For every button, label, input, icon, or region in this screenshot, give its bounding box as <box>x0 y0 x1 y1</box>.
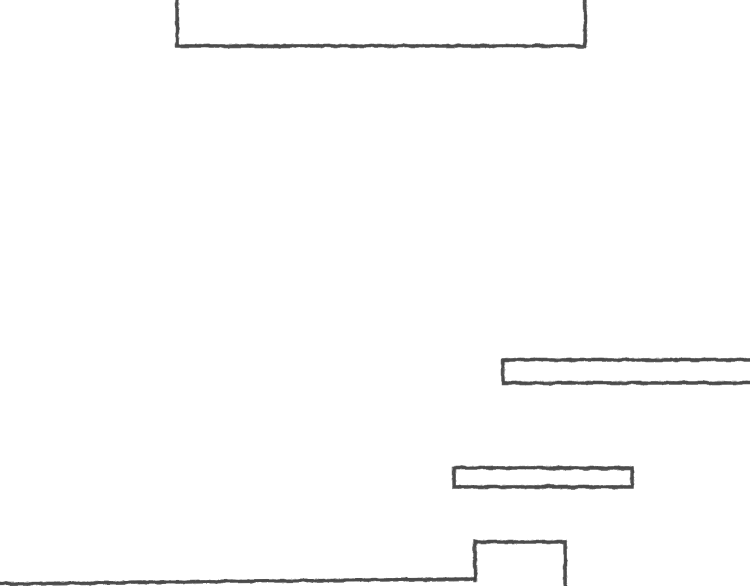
sketch-canvas <box>0 0 750 586</box>
sketch-page <box>0 0 750 586</box>
canvas-background <box>0 0 750 586</box>
